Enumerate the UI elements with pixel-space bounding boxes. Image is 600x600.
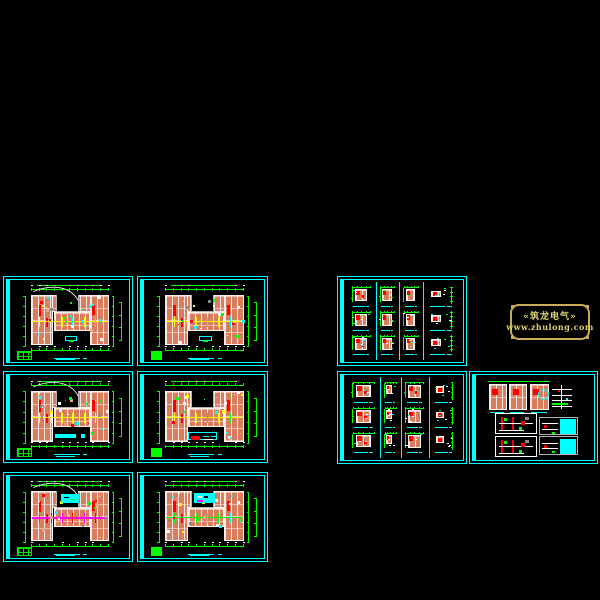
fixture-dot	[101, 428, 103, 430]
unit-speck	[410, 421, 412, 422]
wiring-red	[173, 400, 176, 412]
dim-tick	[357, 311, 358, 313]
fixture-dot	[196, 420, 197, 421]
corridor-riser	[84, 413, 85, 423]
unit-speck	[390, 294, 392, 295]
dim-tick	[112, 401, 115, 402]
fixture-dot	[42, 407, 43, 408]
fixture-dot	[41, 416, 43, 418]
dim-tick	[227, 445, 228, 448]
dim-tick	[112, 346, 115, 347]
dim-tick	[414, 286, 415, 288]
fixture-dot	[98, 296, 101, 299]
dim-tick	[173, 544, 174, 547]
dim-label-dot	[196, 346, 198, 347]
fixture-dot	[167, 530, 170, 533]
dim-tick	[69, 445, 70, 448]
dim-tick	[188, 288, 189, 291]
dim-tick	[414, 311, 415, 313]
unit-red	[357, 386, 361, 390]
riser-green-bar	[552, 403, 568, 405]
dim-tick	[157, 532, 160, 533]
corridor-riser	[185, 317, 186, 327]
unit-speck	[388, 415, 390, 416]
dim-label-dot	[31, 542, 33, 543]
dim-line-right-outer	[256, 398, 257, 437]
dim-label-dot	[204, 542, 206, 543]
sheet-body	[345, 280, 463, 362]
unit-speck	[439, 415, 441, 416]
dim-tick	[243, 484, 244, 487]
fixture-dot	[184, 411, 186, 413]
dim-tick	[235, 383, 236, 386]
dim-label-dot	[212, 285, 214, 286]
unit-plan-cell	[432, 430, 457, 454]
dim-tick	[108, 288, 109, 291]
dim-tick	[212, 348, 213, 351]
dim-tick	[108, 348, 109, 351]
unit-label-line	[385, 402, 392, 403]
corridor-riser	[218, 413, 219, 423]
dim-tick	[396, 407, 397, 409]
fixture-dot	[47, 297, 49, 299]
drawing-title-dash	[83, 554, 87, 555]
sheet-floor-plan-6	[137, 472, 268, 562]
dim-tick	[54, 445, 55, 448]
dim-tick	[254, 511, 257, 512]
fixture-dot	[222, 410, 225, 413]
dim-label-dot	[181, 285, 183, 286]
sheet-body	[11, 280, 129, 362]
sheet-body	[145, 375, 264, 459]
courtyard	[191, 295, 214, 312]
unit-red	[433, 341, 437, 345]
fixture-dot	[39, 396, 42, 399]
panel-line	[499, 453, 524, 454]
dim-label-dot	[85, 346, 87, 347]
dim-tick	[23, 542, 26, 543]
dim-label-dot	[212, 346, 214, 347]
unit-plan-cell	[379, 285, 397, 308]
unit-speck	[405, 418, 407, 419]
unit-speck	[408, 445, 410, 446]
dim-tick	[165, 348, 166, 351]
dim-label-dot	[62, 442, 64, 443]
dim-label-dot	[39, 346, 41, 347]
fixture-dot	[59, 409, 62, 412]
dim-label-dot	[196, 442, 198, 443]
sheet-body	[11, 476, 129, 558]
fixture-dot	[233, 320, 236, 323]
dim-tick	[112, 316, 115, 317]
fixture-dot	[88, 423, 89, 424]
legend-dash	[71, 499, 75, 500]
dim-tick	[119, 411, 122, 412]
dim-label-dot	[54, 481, 56, 482]
unit-label-dash	[415, 354, 417, 355]
dim-tick	[157, 346, 160, 347]
fixture-dot	[106, 410, 109, 413]
dim-tick	[85, 348, 86, 351]
dim-line-left	[352, 337, 353, 351]
dim-tick	[254, 340, 257, 341]
dim-tick	[243, 383, 244, 386]
dim-tick	[62, 484, 63, 487]
legend-dash	[211, 436, 216, 437]
fixture-dot	[65, 321, 67, 323]
dim-tick	[112, 336, 115, 337]
fixture-dot	[58, 402, 61, 405]
dim-tick	[390, 382, 391, 384]
dim-line-left	[25, 296, 26, 347]
sheet-floor-plan-3	[3, 371, 133, 463]
unit-speck	[447, 443, 449, 444]
dim-tick	[69, 383, 70, 386]
corridor-riser	[207, 513, 208, 523]
fixture-dot	[90, 329, 93, 332]
drawing-title-line2	[190, 456, 209, 457]
unit-plan-cell	[426, 310, 457, 333]
dim-tick	[23, 502, 26, 503]
fixture-dot	[69, 397, 72, 400]
dim-label-dot	[243, 481, 245, 482]
fixture-dot	[231, 495, 233, 497]
dim-tick	[119, 511, 122, 512]
unit-label-line	[407, 402, 418, 403]
unit-plan-cell	[383, 430, 397, 454]
dim-tick	[157, 316, 160, 317]
dim-label-dot	[100, 481, 102, 482]
unit-speck	[410, 346, 412, 347]
dim-tick	[92, 484, 93, 487]
fixture-dot	[96, 332, 97, 333]
dim-tick	[247, 532, 250, 533]
unit-speck	[361, 344, 363, 345]
dim-tick	[451, 382, 453, 383]
unit-speck	[444, 290, 446, 291]
dim-tick	[219, 445, 220, 448]
dim-label-dot	[204, 442, 206, 443]
fixture-dot	[99, 516, 100, 517]
dim-tick	[85, 383, 86, 386]
unit-plan-cell	[403, 380, 425, 404]
dim-label-dot	[243, 542, 245, 543]
dim-label-dot	[181, 542, 183, 543]
dim-tick	[394, 286, 395, 288]
fixture-dot	[46, 307, 47, 308]
sheet-unit-details-1	[337, 276, 467, 366]
unit-speck	[391, 297, 393, 298]
unit-plan-cell	[379, 310, 397, 333]
drawing-title-line2	[190, 555, 209, 556]
fixture-dot	[68, 414, 69, 415]
unit-speck	[365, 441, 367, 442]
unit-label-dash	[447, 354, 451, 355]
unit-speck	[362, 315, 364, 316]
corridor-riser	[39, 317, 40, 327]
dim-tick	[247, 412, 250, 413]
dim-tick	[363, 382, 364, 384]
fixture-dot	[182, 320, 184, 322]
panel-red-sq	[544, 425, 547, 428]
dim-tick	[181, 445, 182, 448]
dim-label-dot	[108, 481, 110, 482]
unit-speck	[392, 414, 394, 415]
dim-tick	[254, 436, 257, 437]
corridor-line	[166, 417, 243, 418]
unit-red	[357, 412, 361, 416]
fixture-dot	[179, 341, 180, 342]
drawing-title-dash	[218, 358, 222, 359]
fixture-dot	[65, 400, 66, 401]
dim-tick	[451, 397, 453, 398]
unit-label-dash	[419, 427, 422, 428]
unit-speck	[391, 320, 393, 321]
dim-label-dot	[85, 442, 87, 443]
dim-label-dot	[31, 442, 33, 443]
unit-speck	[448, 446, 450, 447]
unit-speck	[388, 389, 390, 390]
panel-box	[495, 413, 537, 434]
dim-tick	[247, 326, 250, 327]
dim-tick	[227, 484, 228, 487]
dim-label-dot	[54, 346, 56, 347]
dim-tick	[23, 512, 26, 513]
dim-tick	[450, 316, 453, 317]
unit-label-dash	[393, 402, 395, 403]
wiring-red	[92, 400, 95, 411]
dim-tick	[451, 413, 453, 414]
dim-tick	[247, 522, 250, 523]
dim-tick	[374, 382, 375, 384]
dim-tick	[450, 287, 453, 288]
dim-label-dot	[235, 346, 237, 347]
fixture-dot	[169, 520, 170, 521]
unit-speck	[410, 342, 412, 343]
dim-tick	[108, 544, 109, 547]
fixture-dot	[42, 494, 45, 497]
dim-tick	[227, 383, 228, 386]
dim-tick	[46, 544, 47, 547]
dim-tick	[165, 288, 166, 291]
dim-label-dot	[46, 481, 48, 482]
dim-tick	[450, 301, 453, 302]
dim-label-dot	[235, 442, 237, 443]
dim-tick	[235, 445, 236, 448]
unit-red	[438, 438, 442, 442]
cyan-fill-box	[539, 417, 578, 436]
dim-tick	[196, 383, 197, 386]
dim-tick	[366, 311, 367, 313]
fixture-dot	[213, 299, 216, 302]
dim-tick	[414, 335, 415, 337]
unit-speck	[384, 439, 386, 440]
unit-speck	[437, 436, 439, 437]
unit-label-line	[407, 452, 418, 453]
legend-box	[65, 336, 77, 341]
dim-tick	[451, 422, 453, 423]
dim-label-dot	[69, 481, 71, 482]
corridor-riser	[84, 513, 85, 523]
dim-tick	[254, 498, 257, 499]
fixture-dot	[42, 513, 43, 514]
dim-tick	[243, 288, 244, 291]
unit-speck	[388, 409, 390, 410]
dim-tick	[23, 296, 26, 297]
legend-dash	[197, 496, 202, 498]
fixture-dot	[99, 495, 101, 497]
dim-tick	[450, 349, 453, 350]
dim-tick	[390, 407, 391, 409]
dim-line-left	[159, 391, 160, 443]
dim-label-dot	[196, 381, 198, 382]
fixture-dot	[58, 518, 60, 520]
dim-tick	[23, 306, 26, 307]
dim-label-dot	[243, 285, 245, 286]
unit-plan-cell	[432, 380, 457, 404]
unit-speck	[387, 289, 389, 290]
dim-tick	[112, 443, 115, 444]
dim-tick	[410, 382, 411, 384]
unit-red	[409, 386, 413, 391]
dim-tick	[157, 502, 160, 503]
unit-speck	[394, 386, 396, 387]
panel-red-sq	[544, 445, 547, 448]
dim-label-dot	[92, 442, 94, 443]
sheet-floor-plan-5	[3, 472, 133, 562]
dim-tick	[451, 442, 453, 443]
dim-line-right	[248, 391, 249, 443]
unit-speck	[413, 298, 415, 299]
dim-tick	[407, 335, 408, 337]
unit-plan-cell	[350, 333, 372, 356]
unit-speck	[392, 343, 394, 344]
dim-tick	[219, 544, 220, 547]
zhulong-watermark: «筑龙电气» www.zhulong.com	[510, 304, 590, 340]
dim-line-left	[352, 383, 353, 397]
dim-tick	[23, 532, 26, 533]
dim-label-dot	[62, 381, 64, 382]
dim-tick	[418, 311, 419, 313]
cyan-fill-box	[539, 436, 578, 455]
fixture-dot	[57, 517, 58, 518]
dim-tick	[393, 382, 394, 384]
dim-tick	[254, 536, 257, 537]
fixture-dot	[237, 501, 240, 504]
unit-plan-cell	[432, 406, 457, 430]
unit-label-line	[405, 354, 414, 355]
unit-speck	[414, 394, 416, 395]
dim-tick	[112, 412, 115, 413]
unit-speck	[434, 348, 436, 349]
dim-label-dot	[92, 542, 94, 543]
dim-tick	[39, 383, 40, 386]
dim-tick	[157, 336, 160, 337]
fixture-dot	[218, 313, 221, 316]
unit-speck	[436, 340, 438, 341]
sheet-body	[477, 375, 594, 460]
dim-tick	[407, 311, 408, 313]
unit-speck	[436, 323, 438, 324]
corridor-riser	[39, 413, 40, 423]
dim-label-dot	[39, 381, 41, 382]
dim-tick	[100, 288, 101, 291]
dim-tick	[46, 484, 47, 487]
dim-tick	[112, 522, 115, 523]
unit-speck	[412, 315, 414, 316]
unit-label-line	[385, 452, 392, 453]
unit-speck	[369, 415, 371, 416]
unit-speck	[437, 420, 439, 421]
fixture-dot	[194, 326, 197, 329]
dim-tick	[419, 407, 420, 409]
unit-speck	[437, 338, 439, 339]
dim-label-dot	[219, 346, 221, 347]
dim-label-dot	[46, 442, 48, 443]
panel-line	[542, 429, 558, 430]
column-divider	[380, 377, 381, 458]
dim-tick	[54, 383, 55, 386]
dim-tick	[54, 288, 55, 291]
fixture-dot	[170, 403, 171, 404]
dim-tick	[204, 544, 205, 547]
fixture-dot	[240, 521, 241, 522]
dim-label-dot	[46, 285, 48, 286]
dim-tick	[247, 401, 250, 402]
dim-tick	[418, 335, 419, 337]
green-legend-table	[17, 351, 32, 360]
dim-tick	[366, 286, 367, 288]
dim-tick	[451, 447, 453, 448]
dim-tick	[419, 382, 420, 384]
fixture-dot	[234, 394, 235, 395]
logo-corner-ornament	[511, 336, 514, 339]
dim-tick	[157, 391, 160, 392]
dim-label-dot	[204, 481, 206, 482]
unit-speck	[414, 342, 416, 343]
dim-tick	[219, 383, 220, 386]
unit-speck	[443, 385, 445, 386]
dim-line-right	[113, 296, 114, 347]
corridor-riser	[72, 413, 73, 423]
fixture-dot	[42, 528, 45, 531]
fixture-dot	[83, 320, 85, 322]
unit-speck	[363, 437, 365, 438]
fixture-dot	[187, 524, 188, 525]
unit-speck	[415, 439, 417, 440]
dim-tick	[411, 335, 412, 337]
dim-label-dot	[100, 285, 102, 286]
dim-tick	[411, 286, 412, 288]
unit-red	[362, 295, 364, 298]
dim-tick	[384, 286, 385, 288]
dim-tick	[247, 316, 250, 317]
unit-label-dash	[366, 306, 369, 307]
dim-tick	[23, 336, 26, 337]
panel-green-sq	[552, 432, 555, 434]
sheet-unit-details-2	[337, 371, 467, 464]
fixture-dot	[86, 326, 87, 327]
fixture-dot	[99, 319, 102, 322]
corridor-riser	[95, 317, 96, 327]
dim-label-dot	[100, 346, 102, 347]
column-divider	[376, 282, 377, 360]
legend-dash	[197, 500, 203, 502]
wiring-red	[39, 501, 42, 513]
dim-tick	[374, 407, 375, 409]
dim-tick	[450, 336, 453, 337]
dim-tick	[119, 398, 122, 399]
